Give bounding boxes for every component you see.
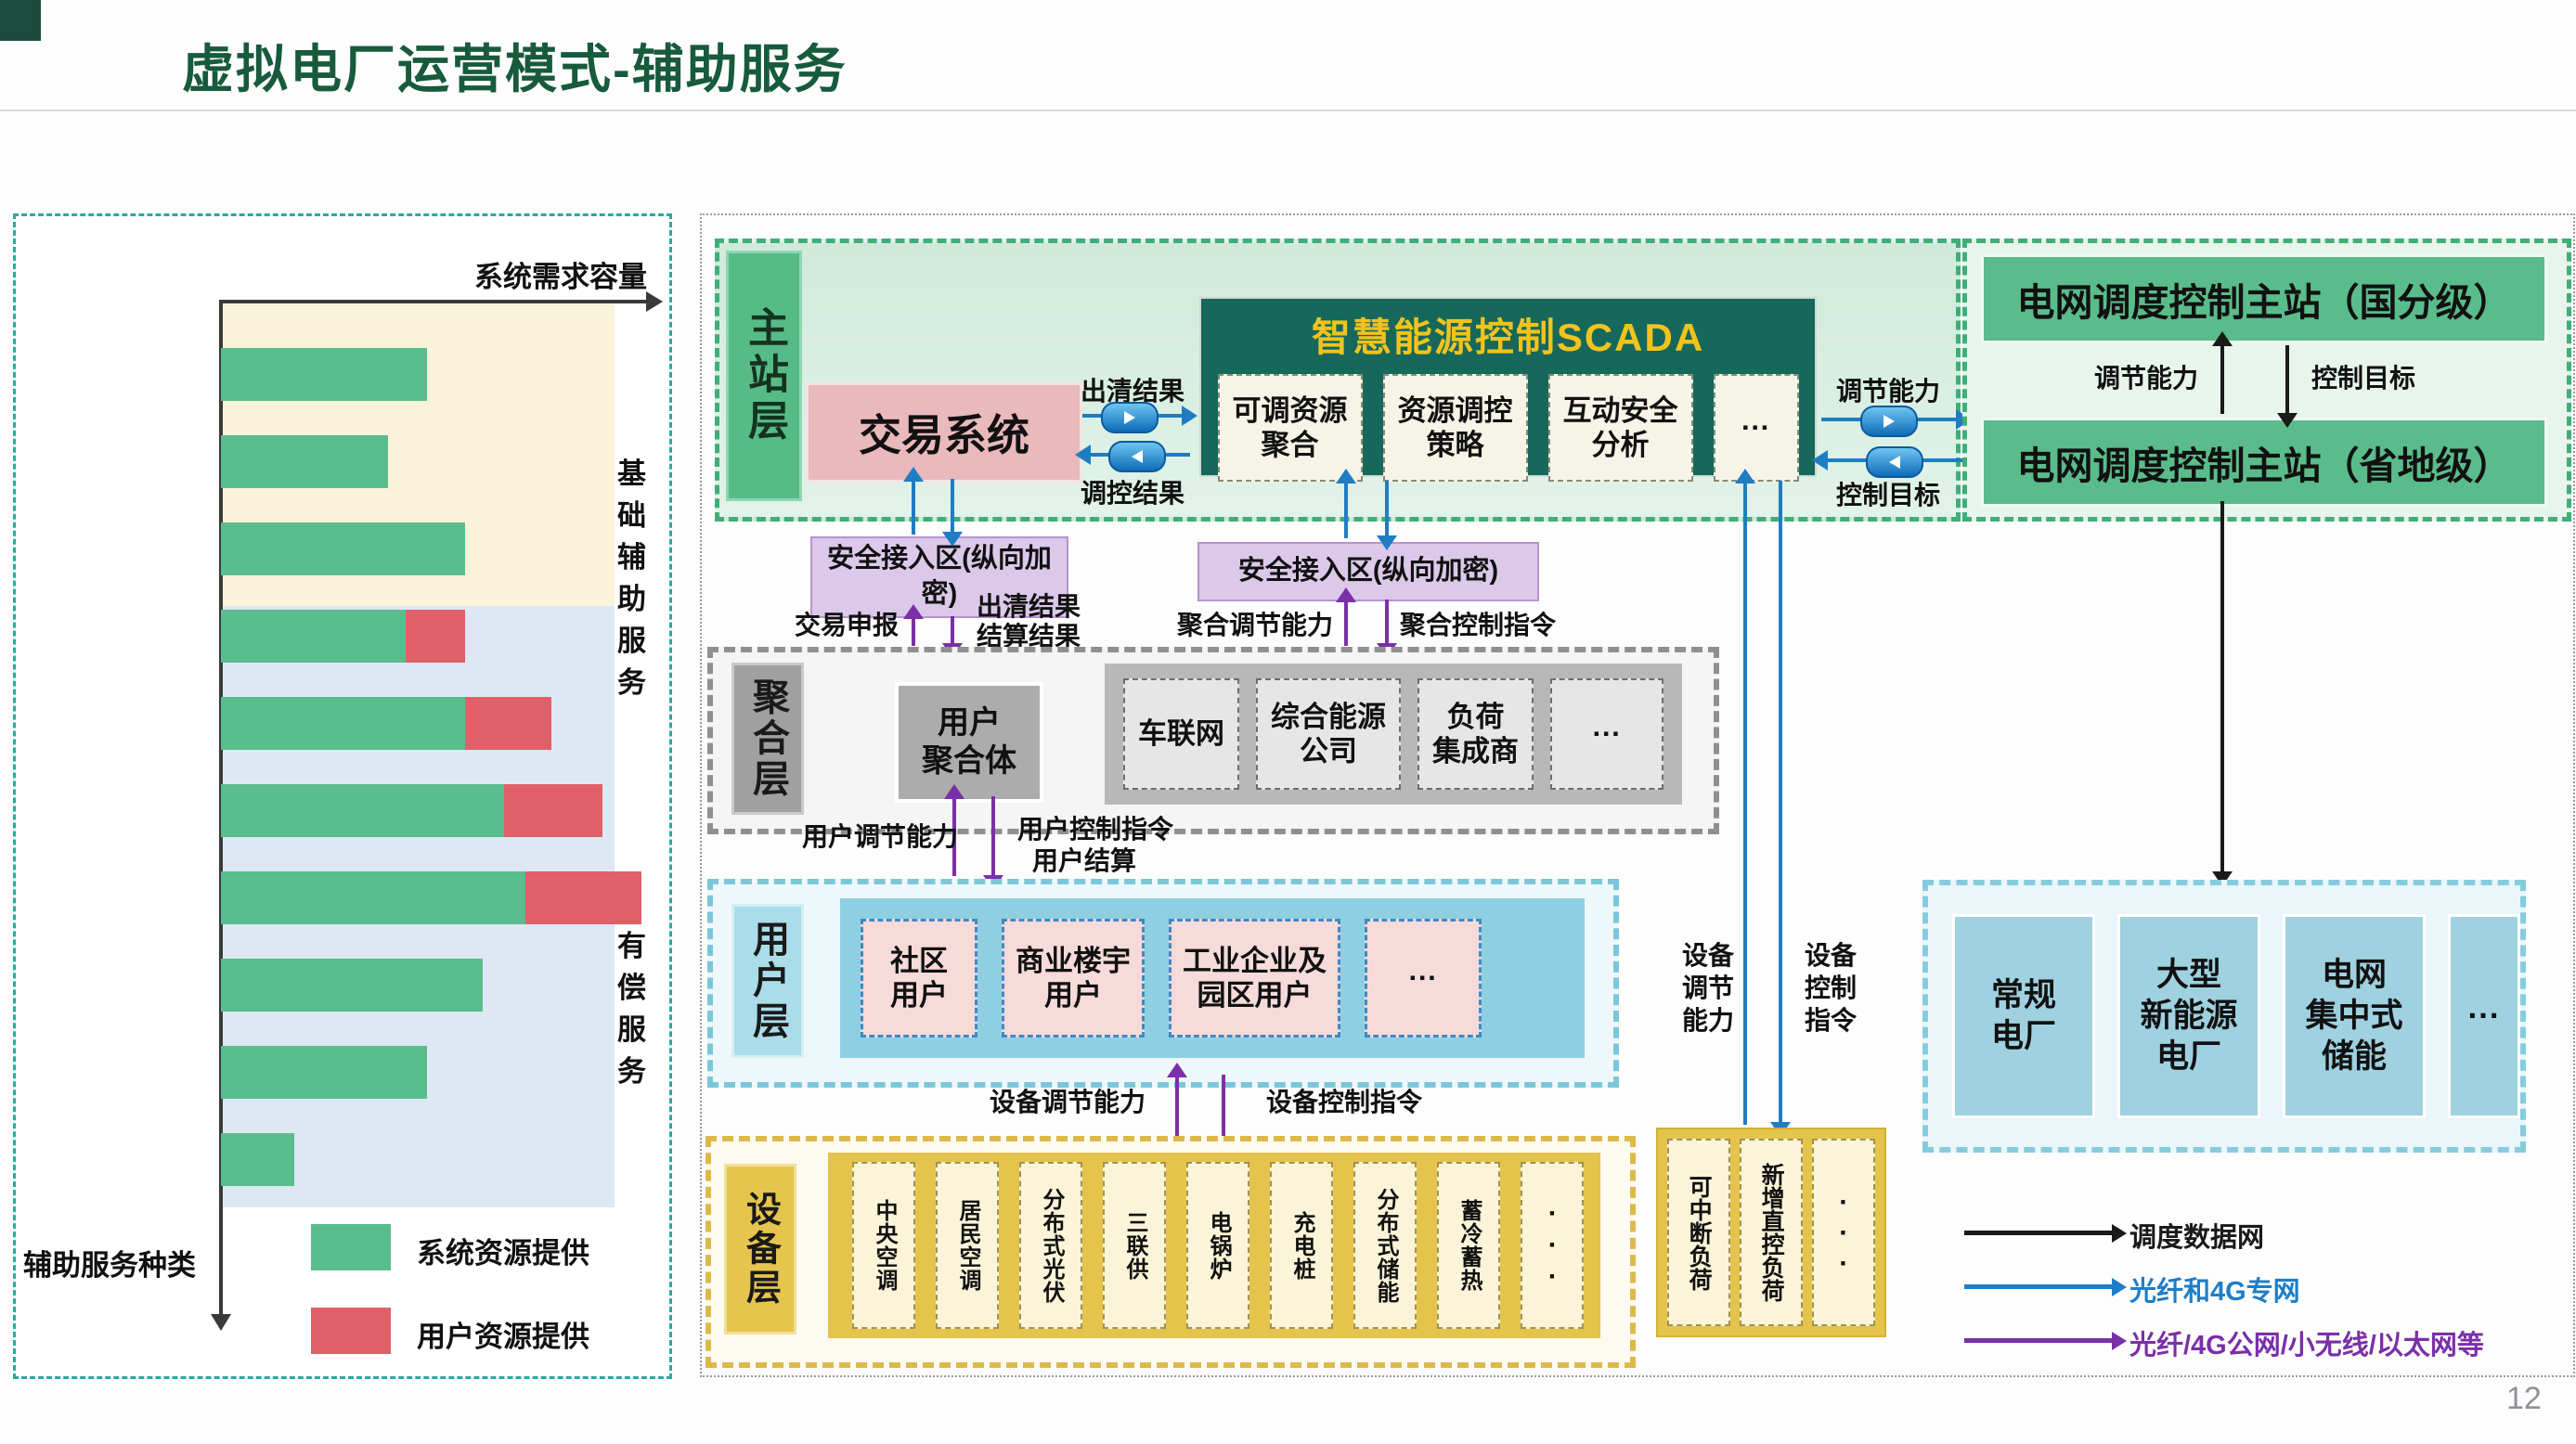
bar	[221, 784, 602, 837]
direct-load-box: ···	[1812, 1139, 1875, 1326]
aggregation-entities: 车联网综合能源 公司负荷 集成商···	[1105, 664, 1682, 805]
plant-box: 大型 新能源 电厂	[2117, 914, 2260, 1118]
bar	[221, 697, 551, 750]
flow-label-loads-command: 设备 控制 指令	[1805, 939, 1871, 1037]
bar	[221, 959, 483, 1012]
provincial-dispatch-station-box: 电网调度控制主站（省地级）	[1981, 418, 2547, 507]
arrow-device-to-user	[1175, 1077, 1179, 1136]
bar	[221, 1133, 294, 1186]
scada-module-box: 资源调控 策略	[1383, 374, 1528, 482]
device-box: 居民空调	[936, 1162, 999, 1329]
plants-container: 常规 电厂大型 新能源 电厂电网 集中式 储能···	[1922, 880, 2526, 1153]
corner-accent-square	[0, 0, 41, 41]
page-title: 虚拟电厂运营模式-辅助服务	[182, 28, 848, 103]
bar-segment	[221, 348, 427, 401]
device-box: 电锅炉	[1186, 1162, 1249, 1329]
bar-segment	[465, 697, 550, 750]
legend-swatch-system	[311, 1224, 391, 1270]
flow-label-device-capability: 设备调节能力	[990, 1086, 1146, 1118]
flow-label-user-capability: 用户调节能力	[802, 820, 958, 853]
arrow-seczone-to-scada	[1344, 483, 1348, 538]
arrow-agg-to-seczone-right	[1344, 601, 1348, 646]
legend-label-system: 系统资源提供	[417, 1230, 589, 1271]
bar	[221, 610, 465, 663]
device-box: 分布式储能	[1353, 1162, 1417, 1329]
bar	[221, 871, 641, 924]
flow-label-user-settlement: 用户结算	[1032, 844, 1136, 877]
user-groups: 社区 用户商业楼宇 用户工业企业及 园区用户···	[840, 898, 1585, 1058]
bar-segment	[221, 1046, 427, 1099]
user-group-box: 工业企业及 园区用户	[1169, 919, 1340, 1038]
legend-swatch-user	[311, 1308, 391, 1354]
x-axis-label: 系统需求容量	[406, 253, 647, 295]
header-divider	[0, 110, 2576, 111]
flow-label-dispatch-up: 调节能力	[2094, 362, 2198, 394]
bar	[221, 435, 388, 488]
bar-segment	[221, 784, 504, 837]
flow-label-device-command: 设备控制指令	[1266, 1086, 1422, 1118]
bar-segment	[525, 871, 641, 924]
direct-load-box: 可中断负荷	[1667, 1139, 1730, 1326]
arrow-seczone-right-to-agg	[1385, 600, 1389, 644]
auxiliary-services-chart-panel: 系统需求容量 辅助服务种类 一次调频基本调峰基本无功调节自动发电控制 AGC旋转…	[13, 213, 672, 1379]
vpp-architecture-panel: 主站层 交易系统 智慧能源控制SCADA 可调资源 聚合资源调控 策略互动安全 …	[700, 213, 2575, 1377]
main-station-layer-label: 主站层	[726, 251, 802, 501]
arrow-national-to-provincial	[2285, 345, 2289, 414]
direct-load-box: 新增直控负荷	[1740, 1139, 1803, 1326]
arrow-loads-to-scada	[1743, 483, 1747, 1125]
scada-module-box: 互动安全 分析	[1548, 374, 1693, 482]
device-box: 充电桩	[1270, 1162, 1333, 1329]
aggregation-entity-box: 车联网	[1123, 678, 1239, 790]
plant-box: ···	[2448, 914, 2520, 1118]
network-device-icon	[1866, 446, 1923, 478]
user-aggregator-box: 用户 聚合体	[895, 682, 1043, 803]
plant-box: 电网 集中式 储能	[2283, 914, 2426, 1118]
bar-segment	[221, 522, 465, 575]
flow-label-control-target: 控制目标	[1836, 479, 1940, 511]
network-legend-label: 光纤/4G公网/小无线/以太网等	[2129, 1323, 2484, 1362]
flow-label-trade-declare: 交易申报	[795, 609, 899, 641]
arrow-dispatch-to-plants	[2220, 501, 2224, 872]
legend-arrow	[1964, 1231, 2113, 1235]
network-device-icon	[1860, 406, 1918, 437]
arrow-provincial-to-national	[2220, 345, 2224, 414]
device-box: 三联供	[1103, 1162, 1166, 1329]
bar-segment	[221, 1133, 294, 1186]
trading-system-box: 交易系统	[806, 382, 1082, 483]
user-group-box: 社区 用户	[861, 919, 977, 1038]
device-box: 分布式光伏	[1019, 1162, 1082, 1329]
scada-modules: 可调资源 聚合资源调控 策略互动安全 分析···	[1218, 374, 1799, 482]
arrow-seczone-to-trading	[912, 481, 915, 535]
arrow-agg-to-user	[991, 796, 995, 876]
user-group-box: ···	[1365, 919, 1482, 1038]
slide: 虚拟电厂运营模式-辅助服务 12 系统需求容量 辅助服务种类 一次调频基本调峰基…	[0, 0, 2576, 1444]
flow-label-loads-capability: 设备 调节 能力	[1667, 939, 1734, 1037]
flow-label-agg-capability: 聚合调节能力	[1177, 609, 1333, 641]
security-zone-right-box: 安全接入区(纵向加密)	[1197, 542, 1539, 601]
arrow-scada-to-seczone	[1385, 481, 1389, 536]
device-box: 蓄冷蓄热	[1437, 1162, 1500, 1329]
scada-module-box: 可调资源 聚合	[1218, 374, 1363, 482]
user-group-box: 商业楼宇 用户	[1002, 919, 1145, 1038]
arrow-agg-to-seczone-left	[912, 618, 915, 646]
device-box: ···	[1521, 1162, 1584, 1329]
legend-arrow	[1964, 1284, 2113, 1289]
bar-segment	[221, 610, 406, 663]
x-axis	[219, 300, 648, 303]
bar	[221, 1046, 427, 1099]
national-dispatch-station-box: 电网调度控制主站（国分级）	[1981, 254, 2547, 343]
device-boxes: 中央空调居民空调分布式光伏三联供电锅炉充电桩分布式储能蓄冷蓄热···	[828, 1153, 1600, 1338]
page-number: 12	[2506, 1381, 2542, 1417]
device-box: 中央空调	[852, 1162, 915, 1329]
device-layer-label: 设备层	[724, 1164, 796, 1334]
flow-label-control-result: 调控结果	[1081, 477, 1184, 509]
network-legend-label: 调度数据网	[2129, 1216, 2264, 1255]
scada-title: 智慧能源控制SCADA	[1312, 306, 1704, 363]
flow-label-user-command: 用户控制指令	[1017, 813, 1173, 845]
group-label-basic-services: 基础 辅助 服务	[617, 454, 669, 704]
aggregation-entity-box: 负荷 集成商	[1417, 678, 1534, 790]
scada-module-box: ···	[1714, 374, 1799, 482]
legend-arrow	[1964, 1338, 2113, 1343]
arrow-seczone-left-to-agg	[951, 616, 954, 644]
bar	[221, 522, 465, 575]
aggregation-entity-box: ···	[1550, 678, 1663, 790]
bar-segment	[504, 784, 602, 837]
bar	[221, 348, 427, 401]
bar-segment	[221, 697, 465, 750]
legend-label-user: 用户资源提供	[417, 1313, 589, 1355]
bar-segment	[221, 959, 483, 1012]
arrow-scada-to-loads	[1779, 481, 1782, 1123]
direct-loads-container: 可中断负荷新增直控负荷···	[1656, 1128, 1886, 1337]
aggregation-entity-box: 综合能源 公司	[1256, 678, 1401, 790]
bar-segment	[221, 435, 388, 488]
plant-box: 常规 电厂	[1952, 914, 2095, 1118]
network-device-icon	[1101, 402, 1159, 433]
arrow-trading-to-seczone	[951, 479, 954, 533]
bar-segment	[221, 871, 525, 924]
group-label-paid-services: 有偿 服务	[617, 926, 669, 1093]
user-layer-label: 用户层	[731, 904, 804, 1058]
flow-label-agg-command: 聚合控制指令	[1400, 609, 1556, 641]
network-legend-label: 光纤和4G专网	[2129, 1270, 2300, 1309]
scada-box: 智慧能源控制SCADA 可调资源 聚合资源调控 策略互动安全 分析···	[1199, 297, 1817, 477]
network-device-icon	[1108, 441, 1166, 472]
aggregation-layer-label: 聚合层	[731, 663, 804, 815]
bar-segment	[406, 610, 466, 663]
flow-label-adjust-capability: 调节能力	[1836, 375, 1940, 407]
y-axis-label: 辅助服务种类	[23, 1242, 218, 1283]
flow-label-dispatch-down: 控制目标	[2311, 362, 2415, 394]
flow-label-clearing: 出清结果	[977, 590, 1081, 623]
